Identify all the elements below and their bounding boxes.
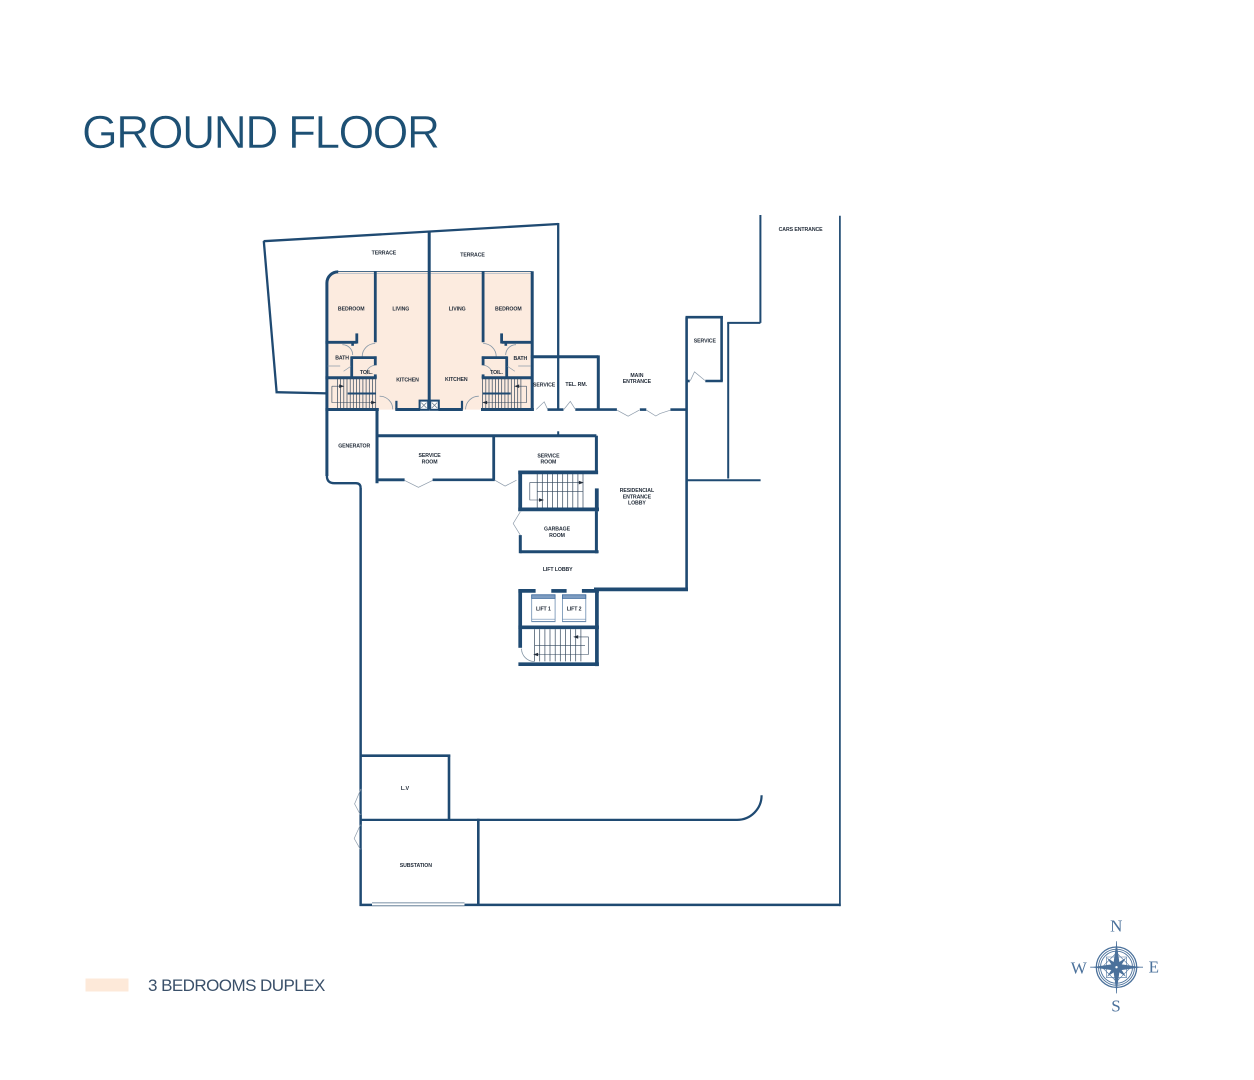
svg-text:SERVICE: SERVICE (694, 338, 717, 344)
svg-text:MAIN: MAIN (630, 373, 643, 379)
svg-text:LIVING: LIVING (449, 306, 466, 312)
svg-text:ENTRANCE: ENTRANCE (623, 379, 652, 385)
svg-text:TERRACE: TERRACE (372, 251, 397, 257)
svg-text:RESIDENCIAL: RESIDENCIAL (620, 488, 655, 494)
svg-text:LIFT 2: LIFT 2 (567, 606, 582, 612)
svg-text:LIFT LOBBY: LIFT LOBBY (543, 567, 573, 573)
svg-text:SERVICE: SERVICE (419, 453, 442, 459)
svg-text:TOIL.: TOIL. (360, 370, 373, 376)
svg-text:E: E (1149, 957, 1159, 976)
svg-text:ROOM: ROOM (549, 533, 565, 539)
svg-text:3 BEDROOMS DUPLEX: 3 BEDROOMS DUPLEX (148, 976, 325, 995)
svg-text:SERVICE: SERVICE (537, 453, 560, 459)
svg-text:W: W (1071, 959, 1088, 978)
svg-text:GROUND FLOOR: GROUND FLOOR (82, 106, 439, 158)
svg-text:KITCHEN: KITCHEN (445, 377, 468, 383)
svg-text:KITCHEN: KITCHEN (396, 378, 419, 384)
svg-text:SUBSTATION: SUBSTATION (400, 863, 432, 869)
svg-text:L.V: L.V (401, 786, 410, 792)
svg-text:ROOM: ROOM (422, 459, 438, 465)
svg-text:LIFT 1: LIFT 1 (536, 606, 551, 612)
svg-text:ROOM: ROOM (540, 460, 556, 466)
svg-text:TOIL.: TOIL. (490, 370, 503, 376)
svg-text:LIVING: LIVING (392, 306, 409, 312)
svg-text:SERVICE: SERVICE (533, 383, 556, 389)
svg-text:BATH: BATH (513, 356, 527, 362)
svg-text:GARBAGE: GARBAGE (544, 527, 571, 533)
svg-text:BATH: BATH (335, 356, 349, 362)
svg-text:LOBBY: LOBBY (628, 501, 646, 507)
svg-text:TEL. RM.: TEL. RM. (565, 382, 587, 388)
svg-text:BEDROOM: BEDROOM (495, 307, 522, 313)
svg-text:N: N (1110, 916, 1122, 935)
svg-text:ENTRANCE: ENTRANCE (623, 494, 652, 500)
svg-text:S: S (1111, 997, 1120, 1016)
svg-text:CARS ENTRANCE: CARS ENTRANCE (779, 227, 824, 233)
svg-text:BEDROOM: BEDROOM (338, 306, 365, 312)
svg-text:GENERATOR: GENERATOR (338, 444, 370, 450)
svg-text:TERRACE: TERRACE (460, 253, 485, 259)
